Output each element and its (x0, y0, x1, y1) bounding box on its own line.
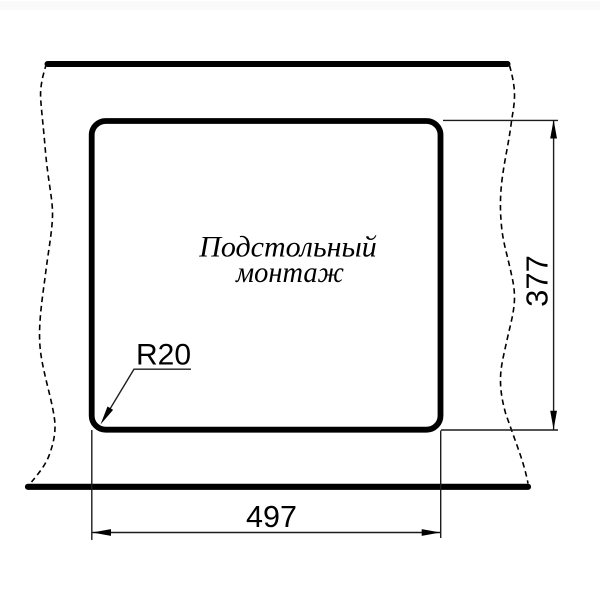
svg-text:377: 377 (520, 255, 555, 307)
svg-text:497: 497 (246, 500, 297, 534)
svg-text:монтаж: монтаж (235, 256, 344, 289)
svg-text:R20: R20 (136, 339, 191, 372)
